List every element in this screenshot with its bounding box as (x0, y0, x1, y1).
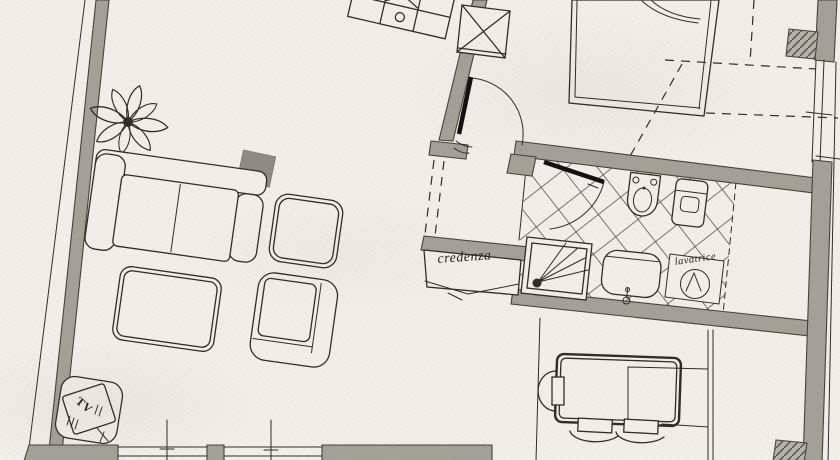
right-wall-main (803, 160, 832, 460)
chair-left (538, 371, 564, 411)
right-window (806, 60, 832, 162)
floor-plan-drawing (0, 0, 840, 460)
counter-lines (628, 367, 708, 427)
pillar-bottom-right (773, 440, 807, 460)
window-ledge-line (816, 156, 840, 159)
plant (88, 84, 168, 154)
center-wall-foot (429, 141, 468, 159)
dining-area (536, 318, 713, 460)
shower (521, 237, 592, 300)
chair-bottom-2 (616, 419, 664, 443)
bedroom (569, 0, 840, 159)
shower-head (533, 279, 542, 288)
window-right (224, 420, 322, 460)
bathroom-west-wall-stub (507, 154, 536, 176)
shelf-unit (348, 0, 455, 39)
bottom-wall-mullion (207, 445, 224, 460)
armchair (248, 271, 339, 369)
opening-dashed (425, 160, 444, 236)
coffee-table (111, 265, 222, 352)
window-left (118, 420, 207, 460)
apartment-floor-plan: credenza lavatrice TV (0, 0, 840, 460)
bottom-wall-b (322, 445, 492, 460)
right-wall-top (815, 0, 837, 62)
pillar-top-right (786, 29, 818, 59)
bedroom-door-arc (471, 78, 523, 145)
crossed-duct-box (457, 5, 510, 58)
dining-table (555, 354, 681, 426)
square-armchair (268, 193, 345, 270)
toilet (671, 178, 708, 228)
bottom-wall-a (24, 445, 118, 460)
plant-pot (123, 117, 133, 127)
